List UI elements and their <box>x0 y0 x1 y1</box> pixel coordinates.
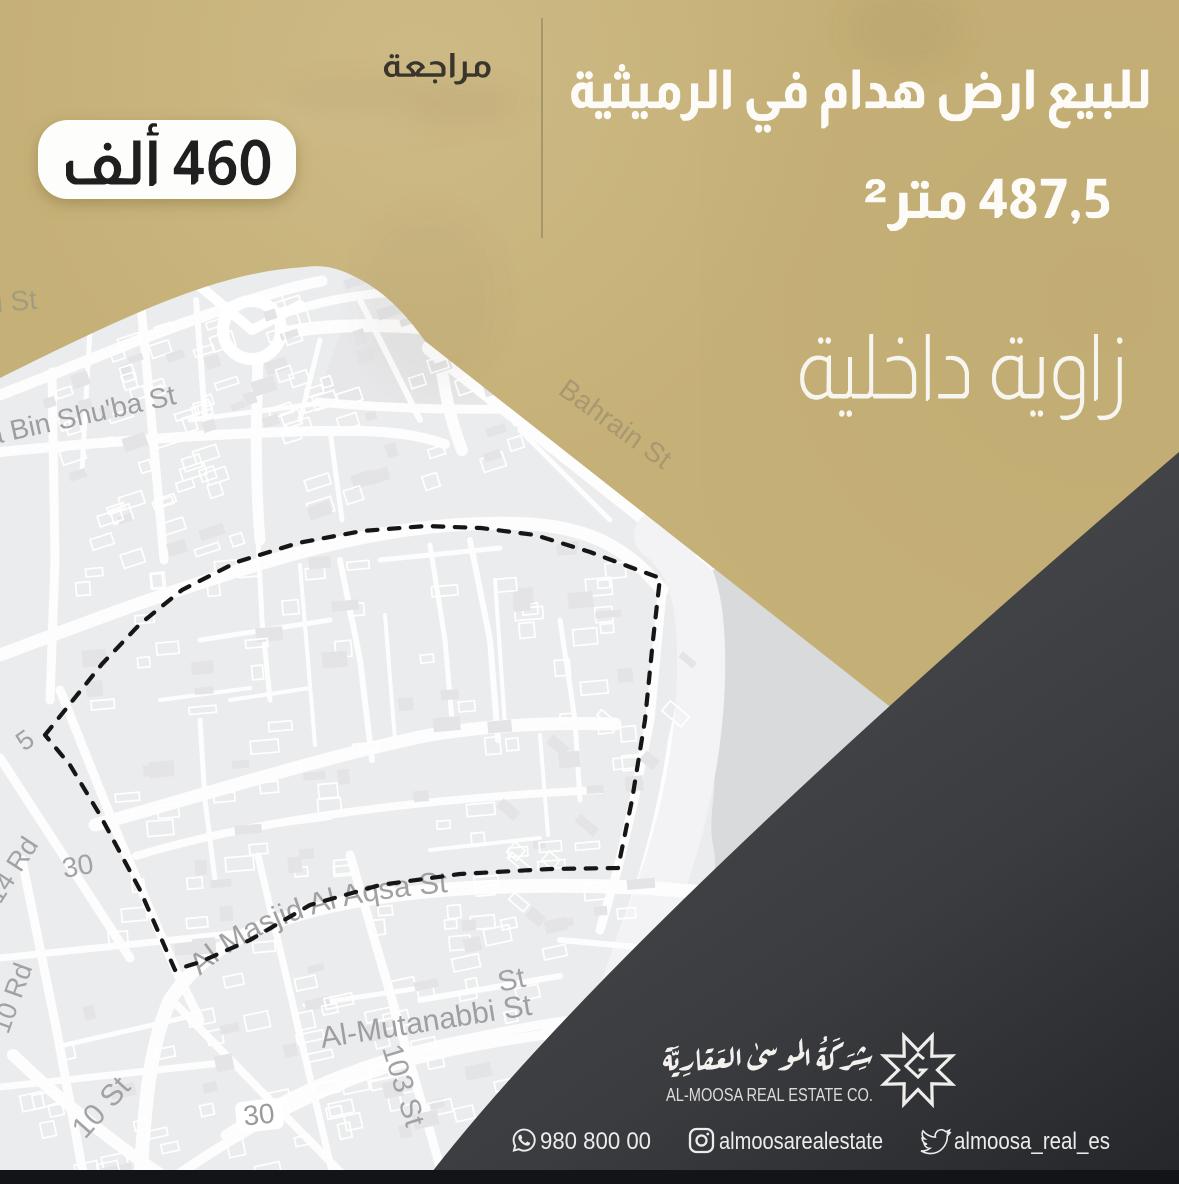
svg-text:30: 30 <box>60 848 96 884</box>
svg-text:almoosa_real_es: almoosa_real_es <box>954 1128 1110 1155</box>
svg-text:d St: d St <box>0 284 38 319</box>
svg-text:30: 30 <box>242 1097 276 1131</box>
svg-text:AL-MOOSA REAL ESTATE CO.: AL-MOOSA REAL ESTATE CO. <box>666 1085 873 1105</box>
svg-text:almoosarealestate: almoosarealestate <box>719 1128 883 1155</box>
svg-text:980 800 00: 980 800 00 <box>540 1128 651 1155</box>
